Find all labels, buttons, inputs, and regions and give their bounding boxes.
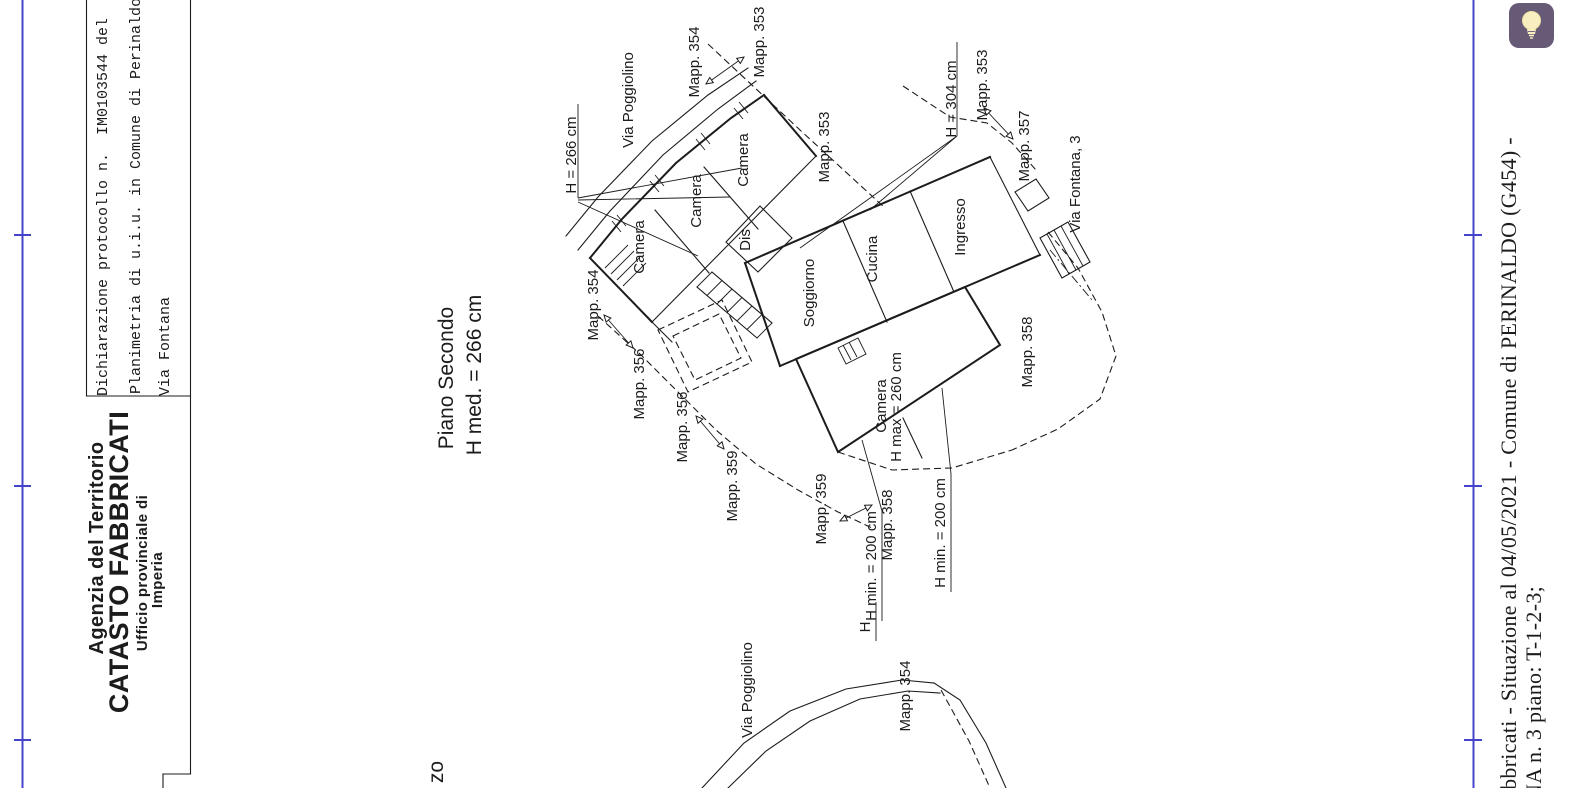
height-label-fragment: H bbox=[857, 622, 874, 633]
parcel-label: Mapp. 357 bbox=[1016, 111, 1033, 182]
parcel-label: Mapp. 354 bbox=[686, 27, 703, 98]
room-label: Camera bbox=[688, 174, 705, 228]
room-label: Ingresso bbox=[952, 198, 969, 256]
agency-line-4: Imperia bbox=[149, 552, 166, 608]
parcel-label: Mapp. 356 bbox=[674, 392, 691, 463]
parcel-label: Mapp. 354 bbox=[585, 270, 602, 341]
height-label: H = 266 cm bbox=[563, 116, 580, 193]
lower-floor-plan: Via Poggiolino Mapp. 354 H zo bbox=[425, 602, 1006, 788]
protocol-block: Dichiarazione protocollo n. IM0103544 de… bbox=[95, 0, 174, 396]
plan-labels: Via Poggiolino Mapp. 354 Mapp. 353 Mapp.… bbox=[563, 7, 1084, 621]
room-label: Camera bbox=[631, 220, 648, 274]
footer-caption: abbricati - Situazione al 04/05/2021 - C… bbox=[1496, 137, 1546, 788]
walls-living-band bbox=[745, 157, 1040, 366]
parcel-label: Mapp. 353 bbox=[751, 7, 768, 78]
room-label: Cucina bbox=[864, 235, 881, 282]
parcel-label: Mapp. 359 bbox=[813, 474, 830, 545]
protocol-line-3: Via Fontana bbox=[157, 297, 174, 396]
parcel-label: Mapp. 358 bbox=[1019, 317, 1036, 388]
street-label: Via Poggiolino bbox=[620, 52, 637, 148]
lower-plan-title-fragment: zo bbox=[425, 761, 448, 783]
footer-line-2: NA n. 3 piano: T-1-2-3; bbox=[1521, 586, 1546, 788]
walls-dis bbox=[726, 206, 792, 272]
parcel-label: Mapp. 358 bbox=[879, 490, 896, 561]
height-label: H min. = 200 cm bbox=[863, 511, 880, 621]
parcel-label: Mapp. 359 bbox=[724, 451, 741, 522]
room-label: Soggiorno bbox=[801, 259, 818, 327]
parcel-label: Mapp. 353 bbox=[974, 50, 991, 121]
protocol-line-2: Planimetria di u.i.u. in Comune di Perin… bbox=[128, 0, 145, 394]
parcel-label: Mapp. 354 bbox=[897, 661, 914, 732]
protocol-line-1: Dichiarazione protocollo n. IM0103544 de… bbox=[95, 18, 112, 396]
document-canvas: Dichiarazione protocollo n. IM0103544 de… bbox=[0, 0, 1579, 788]
footer-line-1: abbricati - Situazione al 04/05/2021 - C… bbox=[1496, 137, 1521, 788]
lightbulb-button[interactable] bbox=[1509, 3, 1554, 48]
plan-title-height: H med. = 266 cm bbox=[463, 295, 486, 455]
height-label: H = 304 cm bbox=[943, 60, 960, 137]
room-label: Dis bbox=[737, 229, 754, 251]
agency-header: Agenzia del Territorio CATASTO FABBRICAT… bbox=[86, 411, 166, 713]
height-label: H max = 260 cm bbox=[888, 352, 905, 462]
room-label: Camera bbox=[735, 133, 752, 187]
road-lines bbox=[566, 68, 756, 250]
agency-line-2: CATASTO FABBRICATI bbox=[104, 411, 134, 713]
parcel-label: Mapp. 356 bbox=[631, 349, 648, 420]
parcel-label: Mapp. 353 bbox=[816, 112, 833, 183]
plan-title: Piano Secondo H med. = 266 cm bbox=[435, 295, 486, 455]
height-label: H min. = 200 cm bbox=[932, 478, 949, 588]
main-floor-plan: Via Poggiolino Mapp. 354 Mapp. 353 Mapp.… bbox=[563, 7, 1116, 621]
street-label: Via Poggiolino bbox=[739, 642, 756, 738]
plan-title-floor: Piano Secondo bbox=[435, 307, 458, 449]
street-label: Via Fontana, 3 bbox=[1067, 135, 1084, 232]
